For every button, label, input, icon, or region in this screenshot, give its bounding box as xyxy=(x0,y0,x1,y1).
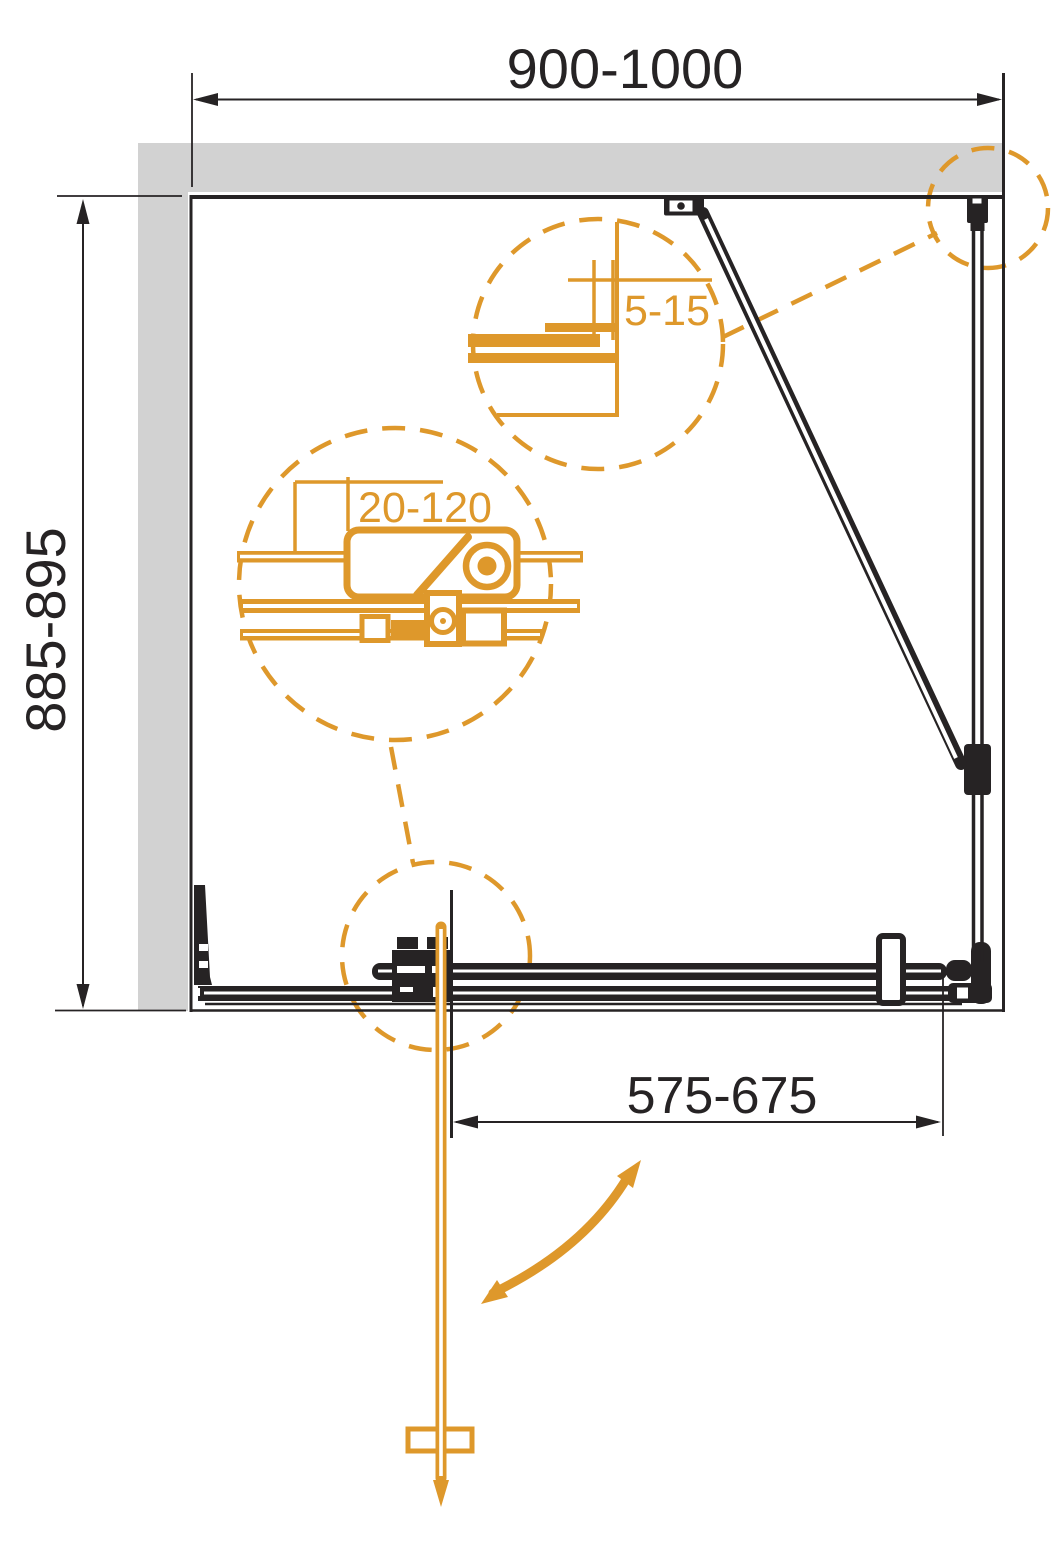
profile-bar-main xyxy=(468,334,600,347)
swing-arc xyxy=(493,1178,627,1293)
door-swing-arrow xyxy=(481,1160,641,1304)
adjuster-screw-center xyxy=(440,618,446,624)
profile-bar-top xyxy=(545,323,615,332)
roller-axle xyxy=(478,557,497,576)
bracket-slot xyxy=(973,199,982,204)
label-overall-depth: 885-895 xyxy=(14,527,77,733)
enclosure-frame xyxy=(190,73,1005,1012)
open-door-tip xyxy=(433,1480,449,1507)
shower-enclosure-plan-drawing: 900-1000 885-895 575-675 5-15 20-120 xyxy=(0,0,1063,1545)
profile-bar-lower xyxy=(468,353,618,363)
carriage-slit-1 xyxy=(397,966,425,973)
detail-leader-line-bottom xyxy=(391,747,413,863)
label-overall-width: 900-1000 xyxy=(507,37,744,100)
wall-profile-left xyxy=(194,885,212,985)
top-hinge-pin xyxy=(677,202,685,210)
door-hinge-block xyxy=(964,744,991,795)
corner-window xyxy=(957,988,968,999)
width-arrow-right xyxy=(977,93,1002,106)
wall-profile-slot-2 xyxy=(199,961,208,968)
door-panel-diagonal-centerline xyxy=(706,219,956,758)
left-wall xyxy=(138,143,188,1011)
wall-profile-slot-1 xyxy=(199,944,208,951)
depth-arrow-bottom xyxy=(77,984,90,1009)
corner-foot xyxy=(948,983,992,1003)
opening-arrow-right xyxy=(916,1116,941,1129)
track-end-notch xyxy=(195,988,200,996)
label-wall-clearance: 5-15 xyxy=(624,287,710,335)
corner-knuckle xyxy=(946,960,972,981)
width-arrow-left xyxy=(193,93,218,106)
opening-arrow-left xyxy=(453,1116,478,1129)
clamp-left xyxy=(362,617,388,641)
clamp-jaw xyxy=(391,620,425,640)
carriage-tab-left xyxy=(397,937,418,949)
open-door xyxy=(408,927,472,1507)
clamp-right xyxy=(463,611,504,644)
carriage-slit-3 xyxy=(400,987,413,992)
label-profile-adjustment: 20-120 xyxy=(358,484,492,532)
fixed-panel-bracket-neck xyxy=(971,222,985,231)
top-wall xyxy=(138,143,1005,192)
door-stopper-bracket xyxy=(879,936,903,1003)
depth-arrow-top xyxy=(77,199,90,224)
label-door-opening: 575-675 xyxy=(627,1067,818,1125)
technical-drawing-page: 900-1000 885-895 575-675 5-15 20-120 xyxy=(0,0,1063,1545)
